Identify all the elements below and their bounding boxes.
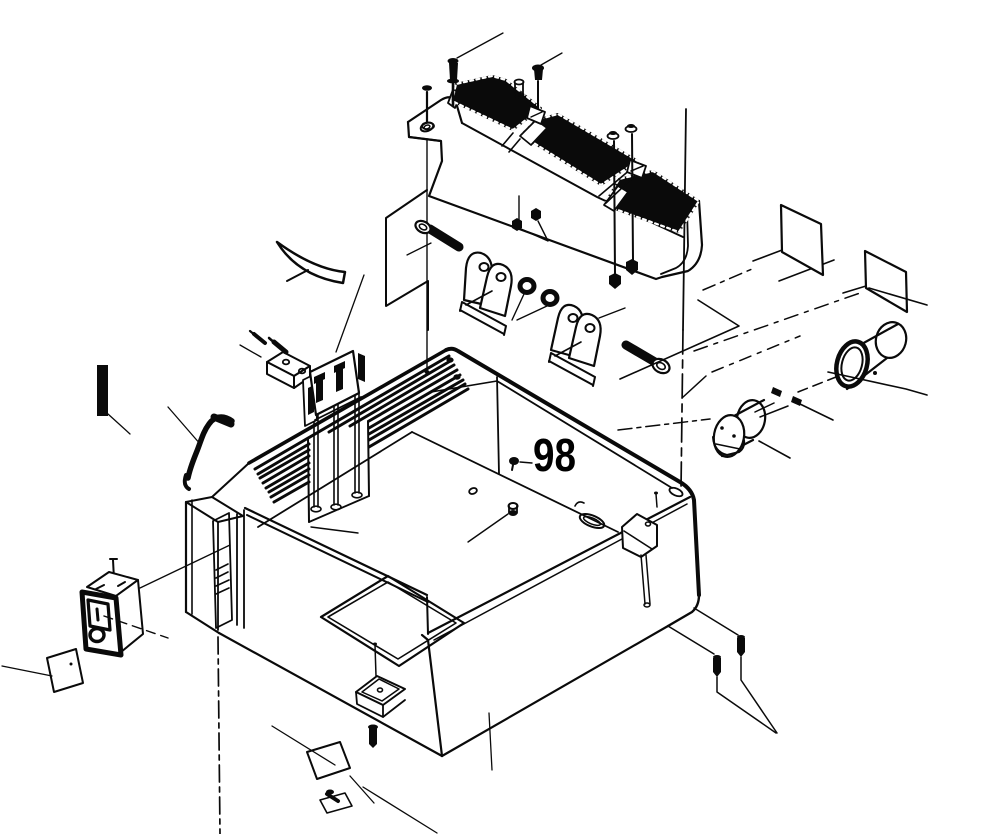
svg-text:98: 98: [533, 429, 576, 481]
